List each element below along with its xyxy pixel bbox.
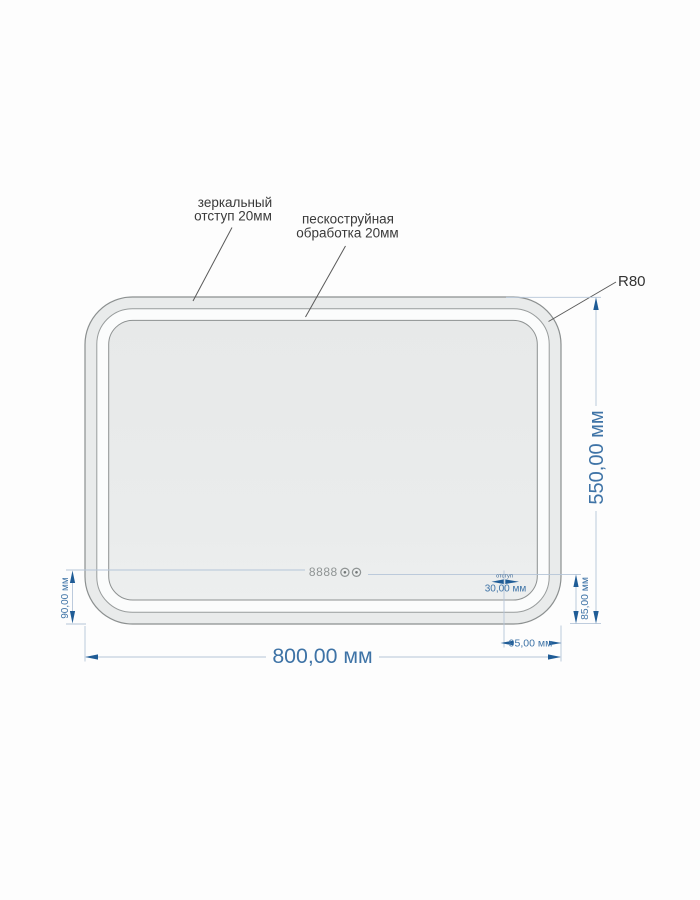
svg-text:отступ 20мм: отступ 20мм bbox=[194, 209, 272, 224]
svg-text:95,00 мм: 95,00 мм bbox=[509, 637, 553, 649]
svg-text:550,00 мм: 550,00 мм bbox=[586, 410, 608, 504]
svg-text:8888: 8888 bbox=[309, 565, 338, 579]
svg-text:90,00 мм: 90,00 мм bbox=[60, 577, 71, 619]
svg-text:85,00 мм: 85,00 мм bbox=[580, 577, 591, 620]
svg-text:пескоструйная: пескоструйная bbox=[302, 211, 394, 226]
svg-text:отступ: отступ bbox=[496, 573, 513, 579]
svg-text:30,00 мм: 30,00 мм bbox=[485, 584, 527, 595]
svg-text:обработка 20мм: обработка 20мм bbox=[296, 225, 398, 240]
svg-text:R80: R80 bbox=[618, 273, 646, 290]
svg-text:800,00 мм: 800,00 мм bbox=[272, 644, 372, 668]
